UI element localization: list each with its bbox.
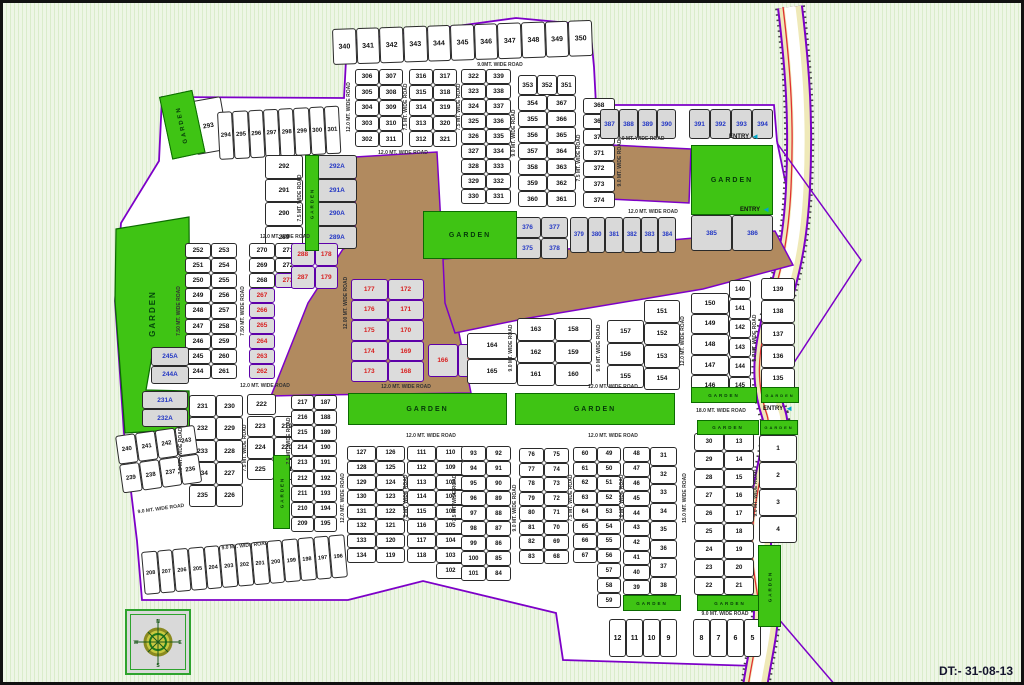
plot-144: 144 [729, 357, 751, 376]
plot-192: 192 [314, 471, 337, 486]
plot-row: 250255 [185, 273, 237, 288]
plot-row: 324337 [461, 99, 511, 114]
plot-380: 380 [588, 217, 606, 253]
plot-328: 328 [461, 159, 486, 174]
strip-379: 379380381382383384 [570, 217, 676, 253]
plot-83: 83 [519, 550, 544, 565]
plot-191: 191 [314, 456, 337, 471]
plot-372: 372 [583, 161, 615, 177]
plot-322: 322 [461, 69, 486, 84]
plot-row: 6756 [573, 549, 621, 564]
plot-row: 33 [650, 484, 677, 503]
road-label: 9.0 MT. WIDE ROAD [702, 611, 749, 617]
plot-row: 9392 [461, 446, 511, 461]
plot-348: 348 [521, 22, 546, 59]
plot-row: 130123 [347, 490, 405, 505]
plot-row: 43 [623, 521, 650, 536]
road-label: 9.0 MT. WIDE ROAD [512, 485, 518, 532]
plot-170: 170 [388, 320, 425, 341]
plot-161: 161 [517, 363, 555, 386]
plot-302: 302 [355, 131, 379, 147]
plot-row: 134119 [347, 548, 405, 563]
garden-label: GARDEN [764, 425, 793, 430]
plot-143: 143 [729, 338, 751, 357]
plot-259: 259 [211, 334, 237, 349]
garden-label: GARDEN [711, 177, 753, 184]
plot-3: 3 [759, 489, 797, 516]
road-label: 12.0 MT. WIDE ROAD [340, 473, 346, 523]
col-141: 140141142143144145 [729, 280, 751, 396]
plot-78: 78 [519, 477, 544, 492]
plot-383: 383 [641, 217, 659, 253]
plot-row: 150 [691, 293, 729, 314]
plot-138: 138 [761, 300, 795, 322]
plot-25: 25 [694, 523, 724, 541]
plot-343: 343 [403, 26, 428, 63]
plot-89: 89 [486, 491, 511, 506]
plot-row: 118103 [407, 548, 465, 563]
plot-row: 325336 [461, 114, 511, 129]
plot-11: 11 [626, 619, 643, 657]
plot-311: 311 [379, 131, 403, 147]
plot-9: 9 [660, 619, 677, 657]
road-label: 12.0 MT. WIDE ROAD [406, 433, 456, 439]
plot-87: 87 [486, 521, 511, 536]
plot-365: 365 [547, 127, 576, 143]
plot-306: 306 [355, 69, 379, 85]
plot-row: 152 [644, 323, 680, 346]
plot-374: 374 [583, 192, 615, 208]
site-plan-canvas: 3403413423433443453463473483493503063073… [0, 0, 1024, 685]
plot-137: 137 [761, 323, 795, 345]
garden-label: GARDEN [636, 601, 668, 606]
block-306: 306307305308304309303310302311 [355, 69, 403, 147]
plot-96: 96 [461, 491, 486, 506]
block-76: 76757774787379728071817082698368 [519, 448, 569, 564]
plot-35: 35 [650, 521, 677, 540]
plot-341: 341 [356, 27, 381, 64]
plot-row: 373 [583, 177, 615, 193]
plot-224: 224 [247, 437, 274, 458]
road-label: 9.0 MT. WIDE ROAD [618, 136, 665, 142]
plot-86: 86 [486, 536, 511, 551]
plot-230: 230 [216, 395, 243, 417]
plot-row: 302311 [355, 131, 403, 147]
plot-310: 310 [379, 116, 403, 132]
plot-row: 42 [623, 536, 650, 551]
plot-345: 345 [450, 24, 475, 61]
garden-label: GARDEN [147, 290, 156, 337]
block-177: 177172176171175170174169173168 [351, 279, 424, 382]
plot-row: 231A [142, 391, 188, 409]
col-292A: 292A291A290A289A [317, 155, 357, 249]
plot-232A: 232A [142, 409, 188, 427]
plot-row: 142 [729, 319, 751, 338]
plot-18: 18 [724, 523, 754, 541]
plot-91: 91 [486, 461, 511, 476]
plot-133: 133 [347, 534, 376, 549]
plot-24: 24 [694, 541, 724, 559]
road-label: 12.0 MT. WIDE ROAD [240, 383, 290, 389]
plot-266: 266 [249, 303, 275, 318]
plot-340: 340 [332, 28, 357, 65]
plot-128: 128 [347, 461, 376, 476]
plot-row: 216188 [291, 410, 337, 425]
plot-row: 249256 [185, 288, 237, 303]
road-label: 9.0 MT. WIDE ROAD [137, 503, 184, 515]
plot-94: 94 [461, 461, 486, 476]
plot-row: 8071 [519, 506, 569, 521]
compass-e: E [178, 640, 182, 646]
plot-row: 305308 [355, 85, 403, 101]
plot-222: 222 [247, 394, 276, 415]
plot-354: 354 [518, 95, 547, 111]
plot-2: 2 [759, 462, 797, 489]
plot-351: 351 [557, 75, 576, 95]
road-label: 12.0 MT. WIDE ROAD [680, 316, 686, 366]
plot-row: 163158 [517, 318, 592, 341]
plot-292A: 292A [317, 155, 357, 179]
plot-211: 211 [291, 486, 314, 501]
plot-209: 209 [291, 517, 314, 532]
plot-136: 136 [761, 345, 795, 367]
strip-12: 1211109 [609, 619, 677, 657]
plot-row: 9986 [461, 536, 511, 551]
road-label: 12.0 MT. WIDE ROAD [628, 209, 678, 215]
entry-lower: ENTRY◄ [763, 405, 793, 413]
plot-row: 58 [597, 578, 621, 593]
plot-157: 157 [607, 320, 644, 343]
garden-label: GARDEN [175, 106, 189, 144]
plot-256: 256 [211, 288, 237, 303]
plot-386: 386 [732, 215, 773, 251]
block-316: 316317315318314319313320312321 [409, 69, 457, 147]
plot-row: 323338 [461, 84, 511, 99]
strip-385: 385386 [691, 215, 773, 251]
plot-253: 253 [211, 243, 237, 258]
plot-row: 1 [759, 435, 797, 462]
garden-135-bar: GARDEN [761, 387, 799, 403]
plot-12: 12 [609, 619, 626, 657]
plot-151: 151 [644, 300, 680, 323]
garden-39-bar: GARDEN [623, 595, 681, 611]
plot-47: 47 [623, 462, 650, 477]
plot-39: 39 [623, 580, 650, 595]
plot-row: 31 [650, 447, 677, 466]
col-231A: 231A232A [142, 391, 188, 427]
road-label: 12.0 MT. WIDE ROAD [260, 234, 310, 240]
plot-113: 113 [407, 475, 436, 490]
plot-363: 363 [547, 159, 576, 175]
plot-56: 56 [597, 549, 621, 564]
plot-148: 148 [691, 334, 729, 355]
plot-389: 389 [638, 109, 657, 139]
plot-1: 1 [759, 435, 797, 462]
block-217: 2171872161882151892141902131912121922111… [291, 395, 337, 532]
road-label: 9.0 MT. WIDE ROAD [617, 140, 623, 187]
plot-125: 125 [376, 461, 405, 476]
plot-358: 358 [518, 159, 547, 175]
plot-row: 354367 [518, 95, 576, 111]
block-252: 2522532512542502552492562482572472582462… [185, 243, 237, 379]
plot-row: 232229 [189, 417, 243, 439]
plot-row: 7774 [519, 463, 569, 478]
plot-49: 49 [597, 447, 621, 462]
garden-label: GARDEN [714, 601, 746, 606]
plot-101: 101 [461, 566, 486, 581]
plot-row: 138 [761, 300, 795, 322]
plot-70: 70 [544, 521, 569, 536]
plot-row: 328333 [461, 159, 511, 174]
plot-152: 152 [644, 323, 680, 346]
plot-227: 227 [216, 462, 243, 484]
plot-row: 6049 [573, 447, 621, 462]
plot-row: 148 [691, 334, 729, 355]
plot-121: 121 [376, 519, 405, 534]
plot-290A: 290A [317, 202, 357, 226]
plot-row: 6150 [573, 462, 621, 477]
plot-258: 258 [211, 319, 237, 334]
plot-82: 82 [519, 535, 544, 550]
plot-304: 304 [355, 100, 379, 116]
plot-123: 123 [376, 490, 405, 505]
plot-41: 41 [623, 551, 650, 566]
plot-173: 173 [351, 361, 388, 382]
plot-row: 9491 [461, 461, 511, 476]
plot-34: 34 [650, 503, 677, 522]
plot-75: 75 [544, 448, 569, 463]
col-48: 48474645444342414039 [623, 447, 650, 595]
plot-325: 325 [461, 114, 486, 129]
plot-385: 385 [691, 215, 732, 251]
plot-176: 176 [351, 300, 388, 321]
garden-label: GARDEN [708, 393, 740, 398]
col-57: 575859 [597, 563, 621, 608]
plot-row: 247258 [185, 319, 237, 334]
road-label: 12.00 MT. WIDE ROAD [343, 277, 349, 330]
plot-row: 128125 [347, 461, 405, 476]
plot-19: 19 [724, 541, 754, 559]
plot-261: 261 [211, 364, 237, 379]
road-label: 7.5 MT. WIDE ROAD [242, 425, 248, 472]
block-353: 3543673553663563653573643583633593623603… [518, 95, 576, 207]
plot-223: 223 [247, 416, 274, 437]
plot-row: 45 [623, 491, 650, 506]
block-240: 240241242243239238237236 [115, 425, 202, 494]
plot-row: 385386 [691, 215, 773, 251]
road-label: 7.5 MT. WIDE ROAD [568, 475, 574, 522]
plot-159: 159 [555, 341, 593, 364]
plot-92: 92 [486, 446, 511, 461]
plot-74: 74 [544, 463, 569, 478]
plot-row: 8170 [519, 521, 569, 536]
plot-row: 303310 [355, 116, 403, 132]
plot-row: 316317 [409, 69, 457, 85]
plot-row: 232A [142, 409, 188, 427]
plot-row: 141 [729, 299, 751, 318]
plot-row: 59 [597, 593, 621, 608]
plot-55: 55 [597, 534, 621, 549]
plot-195: 195 [314, 517, 337, 532]
plot-231: 231 [189, 395, 216, 417]
plot-65: 65 [573, 520, 597, 535]
road-label: 7.5 MT. WIDE ROAD [178, 428, 184, 475]
plot-row: 212192 [291, 471, 337, 486]
plot-309: 309 [379, 100, 403, 116]
plot-76: 76 [519, 448, 544, 463]
plot-row: 157 [607, 320, 644, 343]
plot-73: 73 [544, 477, 569, 492]
plot-row: 326335 [461, 129, 511, 144]
plot-row: 1211109 [609, 619, 677, 657]
plot-387: 387 [600, 109, 619, 139]
plot-54: 54 [597, 520, 621, 535]
plot-row: 330331 [461, 189, 511, 204]
plot-357: 357 [518, 143, 547, 159]
col-267: 267266265264263262 [249, 288, 275, 379]
plot-50: 50 [597, 462, 621, 477]
plots-layer: 3403413423433443453463473483493503063073… [3, 3, 1024, 685]
plot-59: 59 [597, 593, 621, 608]
road-label: 9.0 MT. WIDE ROAD [508, 325, 514, 372]
plot-row: 173168 [351, 361, 424, 382]
road-label: 12.0 MT. WIDE ROAD [588, 433, 638, 439]
plot-366: 366 [547, 111, 576, 127]
plot-126: 126 [376, 446, 405, 461]
plot-row: 10085 [461, 551, 511, 566]
plot-315: 315 [409, 85, 433, 101]
plan-date-label: DT:- 31-08-13 [939, 664, 1013, 678]
plot-row: 360361 [518, 191, 576, 207]
plot-149: 149 [691, 314, 729, 335]
plot-158: 158 [555, 318, 593, 341]
plot-32: 32 [650, 466, 677, 485]
plot-260: 260 [211, 349, 237, 364]
plot-row: 379380381382383384 [570, 217, 676, 253]
plot-row: 2221 [694, 577, 754, 595]
plot-row: 292A [317, 155, 357, 179]
plot-21: 21 [724, 577, 754, 595]
plot-row: 129124 [347, 475, 405, 490]
plot-row: 264 [249, 334, 275, 349]
plot-391: 391 [689, 109, 710, 139]
road-label: 12.0 MT. WIDE ROAD [381, 384, 431, 390]
garden-146-bar: GARDEN [691, 387, 757, 403]
plot-163: 163 [517, 318, 555, 341]
plot-row: 327334 [461, 144, 511, 159]
plot-194: 194 [314, 502, 337, 517]
plot-362: 362 [547, 175, 576, 191]
block-376: 376377375378 [514, 217, 568, 259]
plot-229: 229 [216, 417, 243, 439]
plot-313: 313 [409, 116, 433, 132]
plot-row: 217187 [291, 395, 337, 410]
col-151: 151152153154 [644, 300, 680, 390]
plot-342: 342 [379, 27, 404, 64]
plot-392: 392 [710, 109, 731, 139]
plot-330: 330 [461, 189, 486, 204]
plot-64: 64 [573, 505, 597, 520]
plot-329: 329 [461, 174, 486, 189]
plot-row: 39 [623, 580, 650, 595]
plot-row: 47 [623, 462, 650, 477]
plot-row: 244261 [185, 364, 237, 379]
plot-346: 346 [474, 23, 499, 60]
plot-8: 8 [693, 619, 710, 657]
plot-116: 116 [407, 519, 436, 534]
plot-row: 357364 [518, 143, 576, 159]
plot-147: 147 [691, 355, 729, 376]
plot-303: 303 [355, 116, 379, 132]
plot-row: 153 [644, 345, 680, 368]
plot-row: 6655 [573, 534, 621, 549]
garden-22-bar: GARDEN [697, 595, 763, 611]
plot-382: 382 [623, 217, 641, 253]
plot-301: 301 [324, 106, 342, 155]
plot-row: 144 [729, 357, 751, 376]
plot-row: 312321 [409, 131, 457, 147]
plot-287: 287 [291, 266, 315, 289]
plot-291A: 291A [317, 179, 357, 203]
plot-210: 210 [291, 502, 314, 517]
plot-row: 246259 [185, 334, 237, 349]
plot-69: 69 [544, 535, 569, 550]
plot-27: 27 [694, 487, 724, 505]
plot-row: 8765 [693, 619, 761, 657]
plot-381: 381 [605, 217, 623, 253]
plot-225: 225 [247, 459, 274, 480]
road-label: 9.0 MT. WIDE ROAD [753, 470, 759, 517]
plot-127: 127 [347, 446, 376, 461]
plot-row: 117104 [407, 534, 465, 549]
plot-154: 154 [644, 368, 680, 391]
entry-arrow-icon: ◄ [751, 133, 759, 141]
plot-114: 114 [407, 490, 436, 505]
strip-340: 340341342343344345346347348349350 [332, 20, 593, 65]
plot-339: 339 [486, 69, 511, 84]
plot-172: 172 [388, 279, 425, 300]
plot-row: 7972 [519, 492, 569, 507]
compass-w: W [134, 640, 139, 646]
plot-row: 359362 [518, 175, 576, 191]
block-93: 93929491959096899788988799861008510184 [461, 446, 511, 581]
plot-187: 187 [314, 395, 337, 410]
road-label: 15.0 MT. WIDE ROAD [682, 473, 688, 523]
plot-263: 263 [249, 349, 275, 364]
plot-216: 216 [291, 410, 314, 425]
col-139: 139138137136135 [761, 278, 795, 390]
plot-52: 52 [597, 491, 621, 506]
plot-98: 98 [461, 521, 486, 536]
plot-378: 378 [541, 238, 568, 259]
plot-4: 4 [759, 516, 797, 543]
plot-264: 264 [249, 334, 275, 349]
plot-349: 349 [545, 21, 570, 58]
plot-320: 320 [433, 116, 457, 132]
plot-323: 323 [461, 84, 486, 99]
compass-graphic: N E S W [131, 615, 185, 669]
plot-row: 356365 [518, 127, 576, 143]
garden-label: GARDEN [310, 187, 315, 219]
plot-row: 314319 [409, 100, 457, 116]
plot-117: 117 [407, 534, 436, 549]
road-label: 9.0 MT. WIDE ROAD [752, 315, 758, 362]
plot-row: 322339 [461, 69, 511, 84]
plot-row: 371 [583, 145, 615, 161]
plot-352: 352 [537, 75, 556, 95]
plot-row: 211193 [291, 486, 337, 501]
plot-row: 9689 [461, 491, 511, 506]
